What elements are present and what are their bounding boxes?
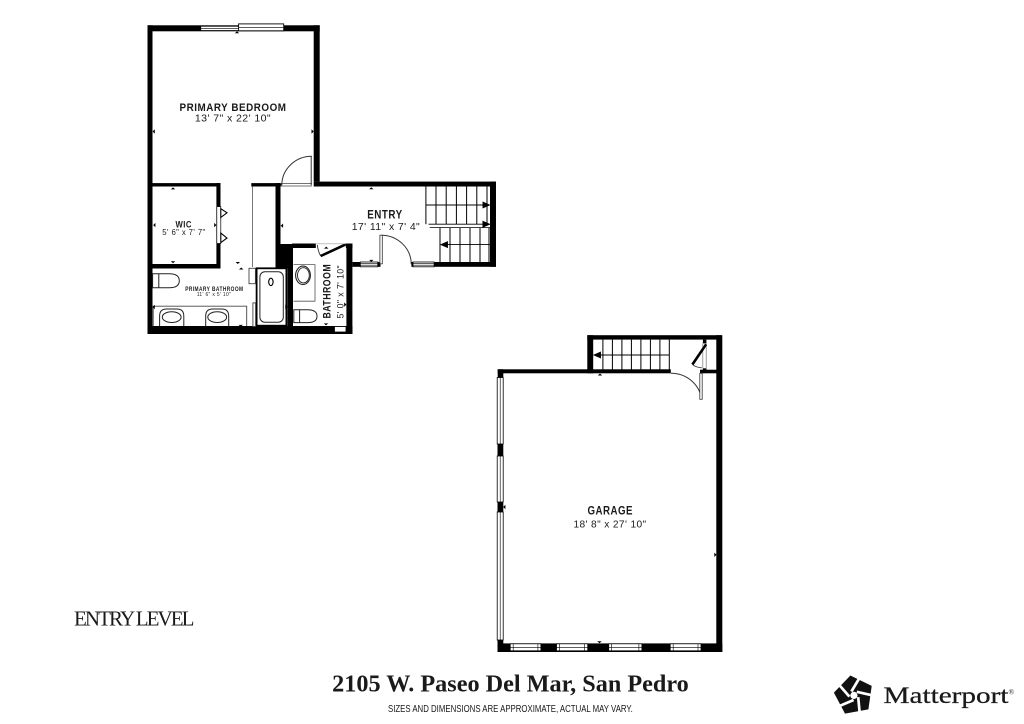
- svg-text:11' 6" x 5' 10": 11' 6" x 5' 10": [197, 292, 232, 298]
- svg-text:5' 0" x 7' 10": 5' 0" x 7' 10": [336, 265, 347, 319]
- svg-text:GARAGE: GARAGE: [588, 504, 634, 518]
- svg-text:17' 11" x 7' 4": 17' 11" x 7' 4": [352, 221, 421, 233]
- svg-text:Matterport: Matterport: [884, 683, 1010, 709]
- svg-text:13' 7" x 22' 10": 13' 7" x 22' 10": [195, 112, 271, 124]
- svg-text:ENTRY LEVEL: ENTRY LEVEL: [74, 606, 195, 630]
- svg-text:5' 6" x 7' 7": 5' 6" x 7' 7": [162, 228, 205, 237]
- svg-text:18' 8" x 27' 10": 18' 8" x 27' 10": [574, 518, 647, 530]
- svg-text:BATHROOM: BATHROOM: [322, 264, 334, 319]
- svg-text:2105 W. Paseo Del Mar, San Ped: 2105 W. Paseo Del Mar, San Pedro: [332, 672, 689, 698]
- svg-text:®: ®: [1009, 688, 1015, 697]
- svg-text:SIZES AND DIMENSIONS ARE APPRO: SIZES AND DIMENSIONS ARE APPROXIMATE, AC…: [388, 704, 633, 715]
- svg-text:ENTRY: ENTRY: [367, 209, 403, 221]
